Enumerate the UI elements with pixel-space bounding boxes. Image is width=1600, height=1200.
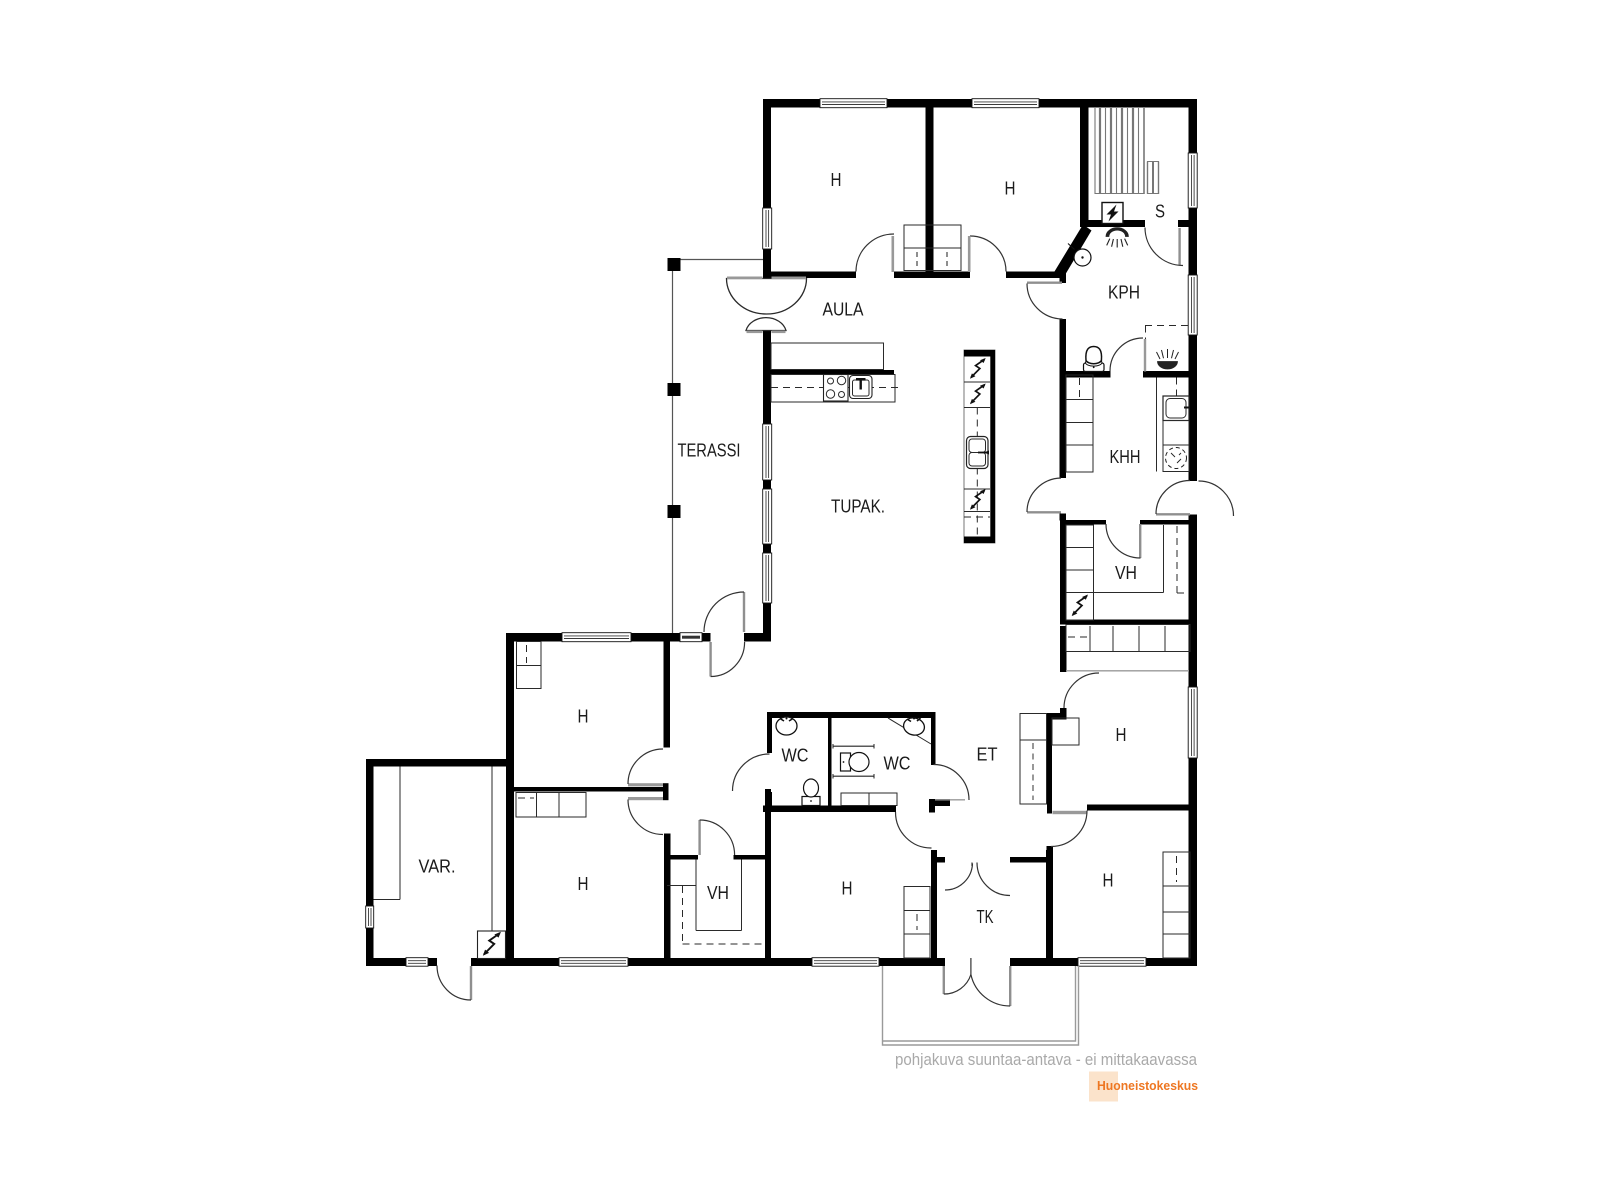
svg-text:WC: WC: [884, 753, 911, 774]
svg-text:H: H: [1103, 870, 1114, 891]
svg-text:WC: WC: [782, 745, 809, 766]
svg-text:pohjakuva suuntaa-antava - ei: pohjakuva suuntaa-antava - ei mittakaava…: [895, 1051, 1198, 1069]
svg-text:TK: TK: [977, 906, 994, 927]
svg-text:VAR.: VAR.: [419, 856, 456, 877]
svg-text:TUPAK.: TUPAK.: [831, 496, 885, 517]
svg-text:Huoneistokeskus: Huoneistokeskus: [1097, 1078, 1198, 1093]
svg-text:H: H: [578, 873, 589, 894]
svg-text:AULA: AULA: [823, 299, 865, 320]
svg-text:VH: VH: [707, 882, 729, 903]
svg-text:TERASSI: TERASSI: [678, 440, 741, 461]
svg-text:H: H: [1116, 724, 1127, 745]
svg-text:H: H: [831, 169, 842, 190]
svg-text:H: H: [842, 878, 853, 899]
svg-text:VH: VH: [1115, 562, 1137, 583]
svg-text:H: H: [578, 706, 589, 727]
svg-text:ET: ET: [977, 744, 998, 765]
svg-text:KPH: KPH: [1108, 282, 1140, 303]
svg-text:KHH: KHH: [1110, 446, 1141, 467]
svg-text:H: H: [1005, 178, 1016, 199]
svg-text:S: S: [1155, 201, 1165, 222]
